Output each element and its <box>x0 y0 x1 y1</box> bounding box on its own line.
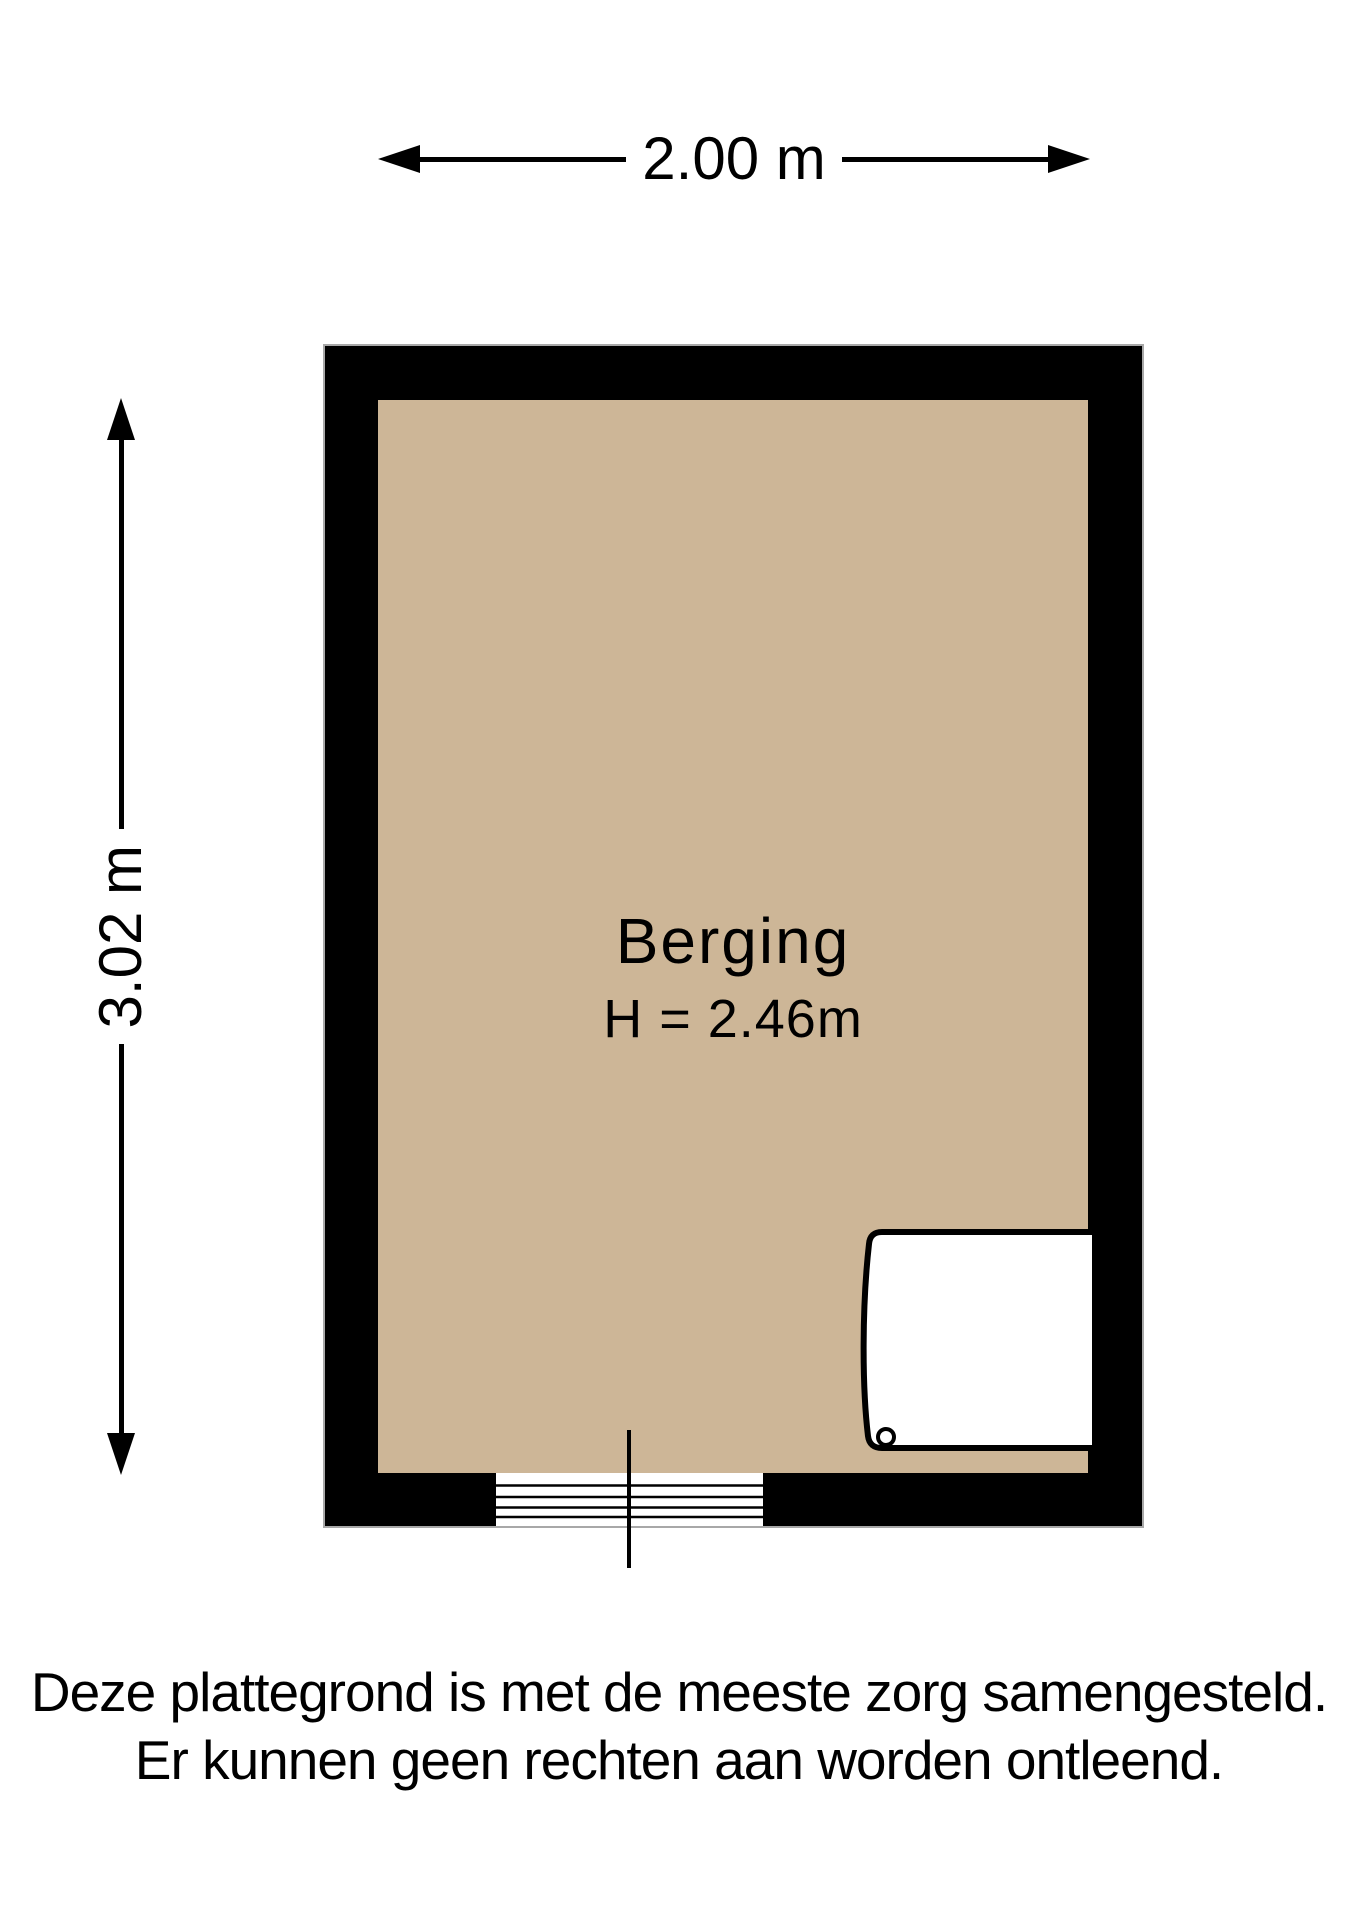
dimension-width: 2.00 m <box>378 123 1090 195</box>
dimension-depth: 3.02 m <box>86 398 156 1475</box>
room-ceiling-height-label: H = 2.46m <box>603 990 863 1049</box>
arrow-left-icon <box>378 145 420 173</box>
dimension-depth-label: 3.02 m <box>91 845 151 1028</box>
disclaimer: Deze plattegrond is met de meeste zorg s… <box>0 1658 1358 1794</box>
room-label-group: Berging H = 2.46m <box>378 906 1088 1050</box>
dimension-line-right <box>842 157 1048 162</box>
door-center-line <box>627 1430 631 1568</box>
disclaimer-line-1: Deze plattegrond is met de meeste zorg s… <box>0 1658 1358 1726</box>
room-name-label: Berging <box>616 906 851 976</box>
dimension-width-label: 2.00 m <box>642 129 825 189</box>
dimension-line-bottom <box>119 1044 124 1433</box>
arrow-right-icon <box>1048 145 1090 173</box>
disclaimer-line-2: Er kunnen geen rechten aan worden ontlee… <box>0 1726 1358 1794</box>
fixture-knob-icon <box>878 1429 894 1445</box>
floor-plan: 2.00 m 3.02 m Berging H = 2.46m <box>0 0 1358 1920</box>
arrow-down-icon <box>107 1433 135 1475</box>
dimension-line-top <box>119 440 124 829</box>
fixture-outline <box>864 1232 1092 1448</box>
dimension-line-left <box>420 157 626 162</box>
arrow-up-icon <box>107 398 135 440</box>
fixture-unit <box>856 1226 1092 1454</box>
